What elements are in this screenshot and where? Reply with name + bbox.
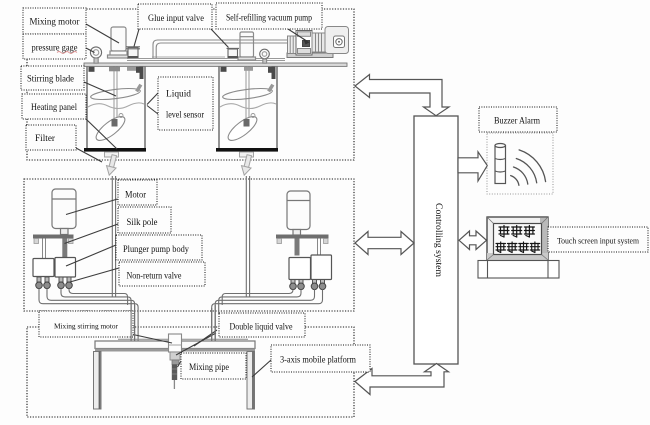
svg-text:3-axis mobile platform: 3-axis mobile platform	[280, 355, 357, 366]
svg-text:Silk pole: Silk pole	[127, 218, 158, 228]
svg-text:Non-return valve: Non-return valve	[127, 272, 182, 282]
svg-text:Filter: Filter	[35, 134, 56, 144]
svg-text:Liquid: Liquid	[166, 90, 191, 100]
svg-text:Touch screen input system: Touch screen input system	[557, 236, 639, 246]
svg-text:Plunger pump body: Plunger pump body	[123, 245, 189, 255]
svg-text:Mixing stirring motor: Mixing stirring motor	[54, 323, 119, 331]
svg-text:Mixing pipe: Mixing pipe	[189, 363, 229, 373]
svg-text:Heating panel: Heating panel	[31, 103, 77, 113]
svg-text:Mixing motor: Mixing motor	[30, 18, 81, 28]
svg-text:Glue input valve: Glue input valve	[148, 14, 204, 24]
svg-text:level sensor: level sensor	[166, 111, 205, 121]
svg-text:pressure gage: pressure gage	[32, 44, 78, 54]
svg-text:Double liquid valve: Double liquid valve	[230, 323, 293, 333]
svg-text:Motor: Motor	[125, 191, 147, 201]
svg-text:Buzzer Alarm: Buzzer Alarm	[494, 117, 541, 127]
svg-text:Self-refilling vacuum pump: Self-refilling vacuum pump	[226, 13, 312, 24]
svg-text:Controlling system: Controlling system	[434, 203, 444, 277]
svg-text:Stirring blade: Stirring blade	[27, 75, 74, 85]
